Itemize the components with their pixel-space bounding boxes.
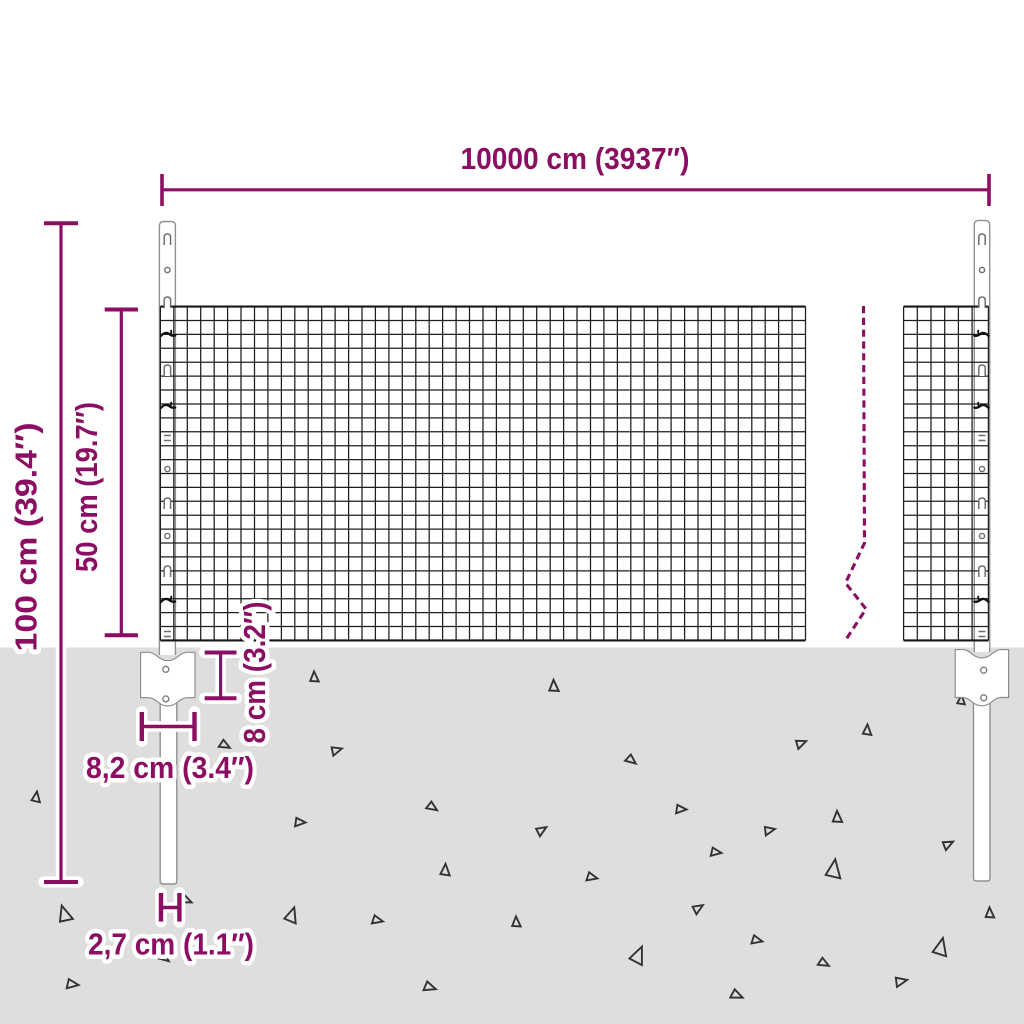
svg-text:2,7 cm (1.1″): 2,7 cm (1.1″) [88,927,254,962]
svg-text:100 cm (39.4″): 100 cm (39.4″) [9,423,44,652]
svg-text:50 cm (19.7″): 50 cm (19.7″) [69,402,104,572]
svg-text:8 cm (3.2″): 8 cm (3.2″) [237,602,272,744]
svg-text:8,2 cm (3.4″): 8,2 cm (3.4″) [86,750,254,785]
svg-text:10000 cm (3937″): 10000 cm (3937″) [461,141,690,176]
